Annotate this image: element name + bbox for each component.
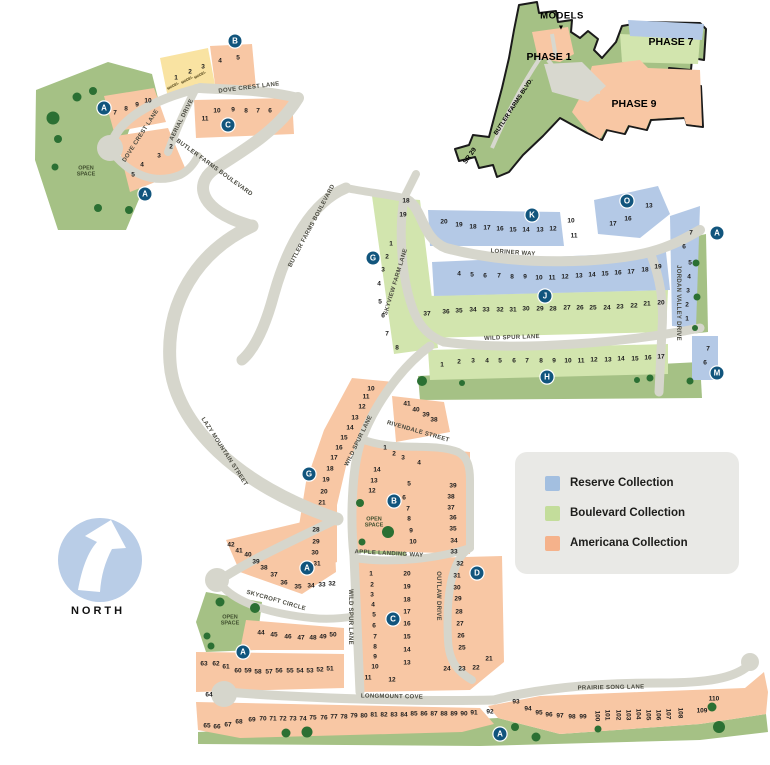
lot-number: 38 xyxy=(447,494,454,501)
lot-number: 20 xyxy=(440,219,447,226)
lot-number: 8 xyxy=(244,108,248,115)
lot-number: 94 xyxy=(524,706,531,713)
lot-number: 4 xyxy=(687,274,691,281)
lot-number: 45 xyxy=(270,632,277,639)
lot-number: 12 xyxy=(388,677,395,684)
lot-number: 32 xyxy=(328,581,335,588)
lot-number: 19 xyxy=(399,212,406,219)
lot-number: 11 xyxy=(571,233,578,240)
lot-number: 5 xyxy=(470,272,474,279)
street-label: DOVE CREST LANE xyxy=(218,81,280,94)
street-label: LAZY MOUNTAIN STREET xyxy=(200,417,249,488)
lot-number: 27 xyxy=(563,305,570,312)
lot-number: 3 xyxy=(401,455,405,462)
lot-number: 5 xyxy=(131,172,135,179)
lot-number: 96 xyxy=(545,712,552,719)
lot-number: 6 xyxy=(512,358,516,365)
lot-number: 9 xyxy=(373,654,377,661)
street-label: RIVENDALE STREET xyxy=(386,420,450,444)
lot-number: 55 xyxy=(286,668,293,675)
map-marker-a: A xyxy=(711,227,724,240)
lot-number: 23 xyxy=(616,304,623,311)
tree-icon xyxy=(713,721,725,733)
lot-number: 66 xyxy=(213,724,220,731)
street-label: WILD SPUR LANE xyxy=(347,589,353,645)
lot-number: 7 xyxy=(689,230,693,237)
map-marker-g: G xyxy=(367,252,380,265)
lot-number: 19 xyxy=(403,584,410,591)
lot-number: 12 xyxy=(590,357,597,364)
lot-number: 12 xyxy=(358,404,365,411)
map-marker-c: C xyxy=(387,613,400,626)
lot-number: 48 xyxy=(309,635,316,642)
lot-number: 71 xyxy=(269,716,276,723)
lot-number: 15 xyxy=(601,271,608,278)
lot-number: 17 xyxy=(609,221,616,228)
lot-number: 10 xyxy=(535,275,542,282)
street-label: WILD SPUR LANE xyxy=(344,415,374,468)
tree-icon xyxy=(532,733,541,742)
lot-number: 9 xyxy=(552,358,556,365)
lot-number: 41 xyxy=(403,401,410,408)
lot-number: 11 xyxy=(549,275,556,282)
tree-icon xyxy=(382,526,394,538)
lot-number: 10 xyxy=(213,108,220,115)
tree-icon xyxy=(302,727,313,738)
lot-number: 4 xyxy=(417,460,421,467)
lot-number: 16 xyxy=(403,621,410,628)
lot-number: 16 xyxy=(496,226,503,233)
lot-number: 16 xyxy=(624,216,631,223)
lot-number: 18 xyxy=(326,466,333,473)
lot-number: 10 xyxy=(144,98,151,105)
lot-number: 6 xyxy=(381,313,385,320)
tree-icon xyxy=(647,375,654,382)
lot-number: 3 xyxy=(686,288,690,295)
lot-number: 20 xyxy=(657,300,664,307)
lot-number: 9 xyxy=(409,528,413,535)
lot-number: 29 xyxy=(454,596,461,603)
street-label: LONGMOUNT COVE xyxy=(361,693,423,700)
lot-number: 7 xyxy=(497,273,501,280)
tree-icon xyxy=(708,703,717,712)
lot-number: 19 xyxy=(455,222,462,229)
legend-label: Americana Collection xyxy=(570,537,688,549)
lot-number: 28 xyxy=(312,527,319,534)
lot-number: 8 xyxy=(395,345,399,352)
lot-number: 106 xyxy=(655,710,662,721)
lot-number: 93 xyxy=(512,699,519,706)
lot-number: 4 xyxy=(140,162,144,169)
tree-icon xyxy=(208,643,215,650)
lot-number: 33 xyxy=(482,307,489,314)
lot-number: 11 xyxy=(578,358,585,365)
lot-number: 73 xyxy=(289,716,296,723)
tree-icon xyxy=(52,164,59,171)
map-marker-k: K xyxy=(526,209,539,222)
lot-number: 18 xyxy=(641,267,648,274)
map-marker-g: G xyxy=(303,468,316,481)
lot-number: 21 xyxy=(485,656,492,663)
lot-number: 22 xyxy=(472,665,479,672)
lot-number: 100 xyxy=(594,711,601,722)
lot-number: 101 xyxy=(604,710,611,721)
lot-number: 62 xyxy=(212,661,219,668)
map-marker-a: A xyxy=(301,562,314,575)
map-marker-j: J xyxy=(539,290,552,303)
lot-number: 14 xyxy=(588,272,595,279)
lot-number: 7 xyxy=(706,346,710,353)
lot-number: 15 xyxy=(403,634,410,641)
tree-icon xyxy=(634,377,640,383)
lot-number: 30 xyxy=(311,550,318,557)
lot-number: 39 xyxy=(422,412,429,419)
lot-number: 13 xyxy=(645,203,652,210)
lot-number: 52 xyxy=(316,667,323,674)
lot-number: 4 xyxy=(457,271,461,278)
legend-swatch-icon xyxy=(545,536,560,551)
lot-number: 36 xyxy=(442,309,449,316)
lot-number: 56 xyxy=(275,668,282,675)
lot-number: 1 xyxy=(383,445,387,452)
lot-number: 39 xyxy=(252,559,259,566)
lot-number: 2 xyxy=(188,69,192,76)
legend-panel: Reserve CollectionBoulevard CollectionAm… xyxy=(515,452,739,574)
lot-number: 57 xyxy=(265,669,272,676)
lot-number: 14 xyxy=(522,227,529,234)
lot-number: 5 xyxy=(372,612,376,619)
lot-number: 31 xyxy=(453,573,460,580)
lot-number: 68 xyxy=(235,719,242,726)
map-marker-h: H xyxy=(541,371,554,384)
lot-number: 76 xyxy=(320,715,327,722)
lot-number: 7 xyxy=(385,331,389,338)
legend-swatch-icon xyxy=(545,506,560,521)
lot-number: 51 xyxy=(326,666,333,673)
street-label: BUTLER FARMS BOULEVARD xyxy=(288,184,337,269)
legend-label: Reserve Collection xyxy=(570,477,674,489)
legend-swatch-icon xyxy=(545,476,560,491)
model-home-tag: MODEL xyxy=(167,81,180,91)
lot-number: 25 xyxy=(458,645,465,652)
map-marker-d: D xyxy=(471,567,484,580)
lot-number: 37 xyxy=(270,572,277,579)
lot-number: 26 xyxy=(457,633,464,640)
lot-number: 5 xyxy=(688,260,692,267)
lot-number: 2 xyxy=(457,359,461,366)
tree-icon xyxy=(204,633,211,640)
lot-number: 81 xyxy=(370,712,377,719)
lot-number: 74 xyxy=(299,716,306,723)
lot-number: 28 xyxy=(455,609,462,616)
lot-number: 14 xyxy=(617,356,624,363)
lot-number: 109 xyxy=(697,708,708,715)
lot-number: 80 xyxy=(360,713,367,720)
lot-number: 32 xyxy=(456,561,463,568)
lot-number: 24 xyxy=(443,666,450,673)
lot-number: 16 xyxy=(644,355,651,362)
street-label: AERIAL DRIVE xyxy=(169,98,195,142)
lot-number: 13 xyxy=(403,660,410,667)
lot-number: 59 xyxy=(244,668,251,675)
lot-number: 35 xyxy=(294,584,301,591)
tree-icon xyxy=(47,112,60,125)
lot-number: 1 xyxy=(369,571,373,578)
lot-number: 95 xyxy=(535,710,542,717)
lot-number: 11 xyxy=(365,675,372,682)
legend-item-americana-collection: Americana Collection xyxy=(545,536,739,551)
lot-number: 20 xyxy=(320,489,327,496)
lot-number: 9 xyxy=(231,107,235,114)
site-plan-page: DOVE CREST LANEAERIAL DRIVEDOVE CREST LA… xyxy=(0,0,770,765)
lot-number: 46 xyxy=(284,634,291,641)
lot-number: 37 xyxy=(447,505,454,512)
lot-number: 97 xyxy=(556,713,563,720)
lot-number: 61 xyxy=(222,664,229,671)
legend-item-reserve-collection: Reserve Collection xyxy=(545,476,739,491)
lot-number: 70 xyxy=(259,716,266,723)
lot-number: 36 xyxy=(280,580,287,587)
map-marker-a: A xyxy=(98,102,111,115)
lot-number: 49 xyxy=(319,634,326,641)
lot-number: 79 xyxy=(350,713,357,720)
lot-number: 40 xyxy=(244,552,251,559)
lot-number: 23 xyxy=(458,666,465,673)
lot-number: 15 xyxy=(631,356,638,363)
lot-number: 4 xyxy=(371,602,375,609)
lot-number: 35 xyxy=(455,308,462,315)
lot-number: 4 xyxy=(218,58,222,65)
lot-number: 3 xyxy=(157,153,161,160)
lot-number: 11 xyxy=(202,116,209,123)
lot-number: 11 xyxy=(363,394,370,401)
lot-number: 6 xyxy=(703,360,707,367)
lot-number: 12 xyxy=(368,488,375,495)
lot-number: 10 xyxy=(367,386,374,393)
lot-number: 5 xyxy=(378,299,382,306)
map-marker-a: A xyxy=(237,646,250,659)
lot-number: 33 xyxy=(450,549,457,556)
lot-number: 42 xyxy=(227,542,234,549)
map-marker-c: C xyxy=(222,119,235,132)
lot-number: 37 xyxy=(423,311,430,318)
lot-number: 19 xyxy=(654,264,661,271)
lot-number: 8 xyxy=(373,644,377,651)
lot-number: 7 xyxy=(256,108,260,115)
lot-number: 3 xyxy=(471,358,475,365)
lot-number: 9 xyxy=(523,274,527,281)
lot-number: 12 xyxy=(549,226,556,233)
lot-number: 8 xyxy=(510,274,514,281)
lot-number: 19 xyxy=(322,477,329,484)
tree-icon xyxy=(89,87,97,95)
lot-number: 65 xyxy=(203,723,210,730)
lot-number: 7 xyxy=(525,358,529,365)
lot-number: 27 xyxy=(456,621,463,628)
lot-number: 26 xyxy=(576,305,583,312)
street-label: WILD SPUR LANE xyxy=(484,334,540,342)
lot-number: 32 xyxy=(496,307,503,314)
lot-number: 1 xyxy=(685,316,689,323)
lot-number: 6 xyxy=(682,244,686,251)
open-space-label: OPEN SPACE xyxy=(77,166,96,179)
open-space-label: OPEN SPACE xyxy=(365,517,384,530)
lot-number: 4 xyxy=(485,358,489,365)
map-marker-m: M xyxy=(711,367,724,380)
lot-number: 13 xyxy=(604,357,611,364)
models-arrow-icon: ▼ xyxy=(558,25,565,32)
legend-item-boulevard-collection: Boulevard Collection xyxy=(545,506,739,521)
lot-number: 38 xyxy=(260,565,267,572)
street-label: APPLE LANDING WAY xyxy=(354,549,423,559)
lot-number: 88 xyxy=(440,711,447,718)
lot-number: 14 xyxy=(346,425,353,432)
lot-number: 41 xyxy=(235,548,242,555)
model-home-tag: MODEL xyxy=(194,70,207,80)
lot-number: 75 xyxy=(309,715,316,722)
lot-number: 31 xyxy=(313,561,320,568)
lot-number: 1 xyxy=(174,75,178,82)
lot-number: 15 xyxy=(509,227,516,234)
lot-number: 67 xyxy=(224,722,231,729)
lot-number: 30 xyxy=(522,306,529,313)
lot-number: 47 xyxy=(297,635,304,642)
lot-number: 54 xyxy=(296,668,303,675)
street-label: LORINER WAY xyxy=(490,248,535,257)
tree-icon xyxy=(693,260,700,267)
lot-number: 18 xyxy=(403,597,410,604)
lot-number: 10 xyxy=(567,218,574,225)
lot-number: 50 xyxy=(329,632,336,639)
tree-icon xyxy=(417,376,427,386)
lot-number: 4 xyxy=(377,281,381,288)
lot-number: 35 xyxy=(449,526,456,533)
lot-number: 30 xyxy=(453,585,460,592)
lot-number: 1 xyxy=(440,362,444,369)
tree-icon xyxy=(694,294,701,301)
lot-number: 14 xyxy=(403,647,410,654)
tree-icon xyxy=(356,499,364,507)
lot-number: 31 xyxy=(509,307,516,314)
lot-number: 18 xyxy=(469,224,476,231)
tree-icon xyxy=(282,729,291,738)
lot-number: 10 xyxy=(371,664,378,671)
lot-number: 33 xyxy=(318,582,325,589)
lot-number: 18 xyxy=(402,198,409,205)
lot-number: 2 xyxy=(392,451,396,458)
lot-number: 53 xyxy=(306,668,313,675)
lot-number: 25 xyxy=(589,305,596,312)
open-space-label: OPEN SPACE xyxy=(221,615,240,628)
lot-number: 13 xyxy=(575,273,582,280)
map-marker-b: B xyxy=(388,495,401,508)
lot-number: 91 xyxy=(470,710,477,717)
lot-number: 13 xyxy=(536,227,543,234)
lot-number: 17 xyxy=(330,455,337,462)
lot-number: 38 xyxy=(430,417,437,424)
lot-number: 83 xyxy=(390,712,397,719)
lot-number: 72 xyxy=(279,716,286,723)
lot-number: 7 xyxy=(373,634,377,641)
lot-number: 29 xyxy=(536,306,543,313)
lot-number: 21 xyxy=(318,500,325,507)
street-label: JORDAN VALLEY DRIVE xyxy=(675,265,681,341)
inset-phase1-label: PHASE 1 xyxy=(527,51,572,63)
lot-number: 6 xyxy=(402,495,406,502)
lot-number: 17 xyxy=(657,354,664,361)
lot-number: 89 xyxy=(450,711,457,718)
lot-number: 2 xyxy=(370,582,374,589)
lot-number: 85 xyxy=(410,711,417,718)
lot-number: 10 xyxy=(409,539,416,546)
lot-number: 92 xyxy=(486,709,493,716)
lot-number: 8 xyxy=(407,516,411,523)
lot-number: 98 xyxy=(568,714,575,721)
lot-number: 16 xyxy=(335,445,342,452)
lot-number: 3 xyxy=(370,592,374,599)
lot-number: 40 xyxy=(412,407,419,414)
lot-number: 69 xyxy=(248,717,255,724)
tree-icon xyxy=(216,598,225,607)
lot-number: 34 xyxy=(450,538,457,545)
lot-number: 3 xyxy=(381,267,385,274)
lot-number: 77 xyxy=(330,714,337,721)
lot-number: 86 xyxy=(420,711,427,718)
lot-number: 5 xyxy=(236,55,240,62)
lot-number: 8 xyxy=(124,106,128,113)
tree-icon xyxy=(692,325,698,331)
tree-icon xyxy=(511,723,519,731)
street-label: DOVE CREST LANE xyxy=(122,109,161,164)
lot-number: 2 xyxy=(169,144,173,151)
map-annotations-layer: DOVE CREST LANEAERIAL DRIVEDOVE CREST LA… xyxy=(0,0,770,765)
lot-number: 2 xyxy=(385,254,389,261)
lot-number: 17 xyxy=(403,609,410,616)
lot-number: 5 xyxy=(498,358,502,365)
lot-number: 84 xyxy=(400,712,407,719)
lot-number: 29 xyxy=(312,539,319,546)
lot-number: 13 xyxy=(351,415,358,422)
lot-number: 99 xyxy=(579,714,586,721)
map-marker-a: A xyxy=(139,188,152,201)
lot-number: 82 xyxy=(380,712,387,719)
lot-number: 28 xyxy=(549,306,556,313)
lot-number: 110 xyxy=(709,696,720,703)
lot-number: 90 xyxy=(460,711,467,718)
lot-number: 16 xyxy=(614,270,621,277)
tree-icon xyxy=(125,206,133,214)
tree-icon xyxy=(94,204,102,212)
lot-number: 20 xyxy=(403,571,410,578)
lot-number: 105 xyxy=(645,710,652,721)
north-label: NORTH xyxy=(71,605,125,617)
lot-number: 7 xyxy=(113,110,117,117)
lot-number: 34 xyxy=(307,583,314,590)
lot-number: 78 xyxy=(340,714,347,721)
lot-number: 102 xyxy=(615,710,622,721)
lot-number: 24 xyxy=(603,305,610,312)
inset-phase7-label: PHASE 7 xyxy=(649,36,694,48)
lot-number: 39 xyxy=(449,483,456,490)
lot-number: 58 xyxy=(254,669,261,676)
lot-number: 34 xyxy=(469,307,476,314)
lot-number: 15 xyxy=(340,435,347,442)
map-marker-b: B xyxy=(229,35,242,48)
tree-icon xyxy=(595,726,602,733)
lot-number: 64 xyxy=(205,692,212,699)
lot-number: 8 xyxy=(539,358,543,365)
lot-number: 5 xyxy=(407,481,411,488)
